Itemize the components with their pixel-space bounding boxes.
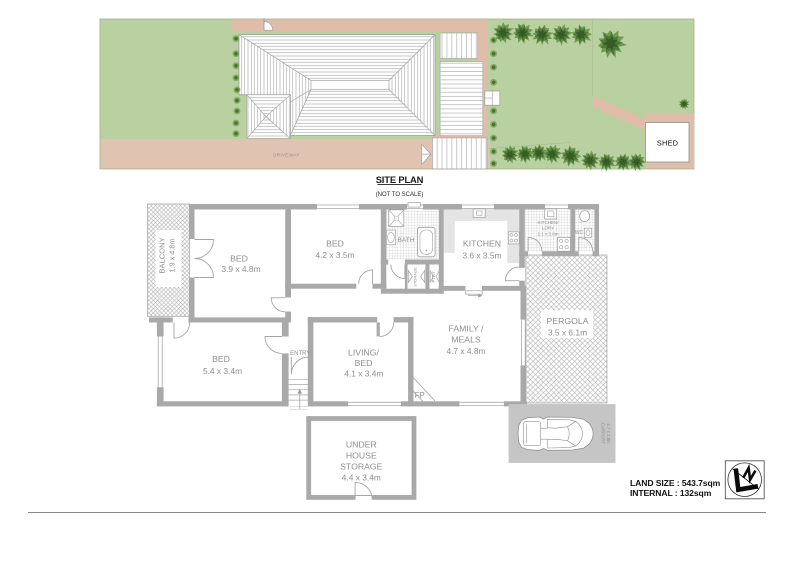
svg-text:SITE PLAN: SITE PLAN	[376, 174, 424, 185]
svg-text:KITCHEN/: KITCHEN/	[537, 220, 559, 225]
svg-text:4.7 x 4.8m: 4.7 x 4.8m	[446, 346, 485, 356]
svg-text:BED: BED	[230, 254, 248, 264]
svg-text:2.1 x 2.8m: 2.1 x 2.8m	[537, 232, 558, 237]
svg-text:LDRY: LDRY	[542, 226, 554, 231]
svg-text:STORAGE: STORAGE	[413, 267, 418, 287]
svg-text:ENTRY: ENTRY	[290, 351, 310, 357]
svg-text:WC: WC	[575, 230, 584, 236]
svg-text:UNDER: UNDER	[346, 440, 377, 450]
svg-text:SHED: SHED	[657, 139, 678, 148]
svg-text:BED: BED	[212, 354, 230, 364]
svg-text:LAND SIZE : 543.7sqm: LAND SIZE : 543.7sqm	[630, 478, 721, 488]
svg-text:BED: BED	[355, 358, 373, 368]
svg-text:HOUSE: HOUSE	[346, 451, 377, 461]
svg-text:BATH: BATH	[397, 237, 414, 244]
svg-text:3.6 x 3.5m: 3.6 x 3.5m	[462, 251, 501, 261]
svg-text:BED: BED	[326, 239, 344, 249]
svg-text:PERGOLA: PERGOLA	[546, 316, 588, 326]
svg-text:MEALS: MEALS	[451, 335, 481, 345]
svg-text:STORAGE: STORAGE	[340, 462, 383, 472]
svg-text:3.5 x 6.1m: 3.5 x 6.1m	[548, 328, 587, 338]
svg-text:CARPORT: CARPORT	[601, 423, 606, 445]
svg-text:FP: FP	[415, 391, 425, 400]
svg-text:KITCHEN: KITCHEN	[463, 239, 501, 249]
svg-text:1.9 x 4.8m: 1.9 x 4.8m	[168, 238, 177, 272]
svg-text:5.4 x 3.4m: 5.4 x 3.4m	[203, 366, 242, 376]
svg-text:3.9 x 4.8m: 3.9 x 4.8m	[221, 264, 260, 274]
svg-text:PTRY: PTRY	[431, 271, 436, 282]
svg-text:INTERNAL : 132sqm: INTERNAL : 132sqm	[630, 488, 712, 498]
svg-text:4.1 x 3.4m: 4.1 x 3.4m	[344, 368, 383, 378]
svg-text:4.4 x 3.4m: 4.4 x 3.4m	[342, 473, 381, 483]
svg-text:DRIVEWAY: DRIVEWAY	[273, 152, 300, 158]
svg-text:4.2 x 3.5m: 4.2 x 3.5m	[315, 250, 354, 260]
svg-text:4.7 x 2.8m: 4.7 x 2.8m	[606, 423, 611, 444]
svg-text:LIVING/: LIVING/	[348, 348, 379, 358]
svg-text:(NOT TO SCALE): (NOT TO SCALE)	[376, 192, 424, 198]
svg-text:BALCONY: BALCONY	[158, 237, 167, 273]
svg-text:FAMILY /: FAMILY /	[449, 324, 485, 334]
